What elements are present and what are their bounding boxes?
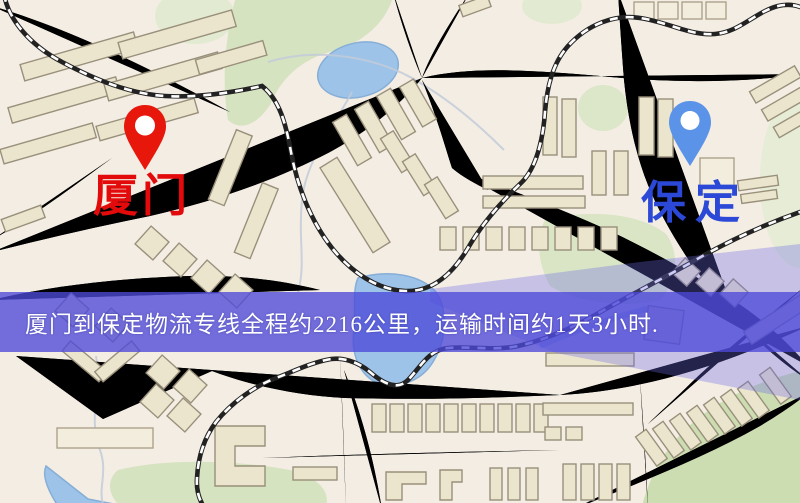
- map-background: [0, 0, 800, 503]
- banner-text: 厦门到保定物流专线全程约2216公里，运输时间约1天3小时.: [0, 305, 659, 339]
- map-screenshot: 厦门 保定 厦门到保定物流专线全程约2216公里，运输时间约1天3小时.: [0, 0, 800, 503]
- origin-pin-shape: [124, 105, 166, 170]
- destination-label: 保定: [641, 181, 749, 226]
- origin-pin-hole: [135, 116, 155, 136]
- origin-map-pin-icon: [122, 104, 168, 172]
- destination-pin-shape: [669, 101, 711, 166]
- destination-pin-hole: [681, 111, 700, 130]
- origin-label: 厦门: [93, 174, 191, 219]
- info-banner: 厦门到保定物流专线全程约2216公里，运输时间约1天3小时.: [0, 292, 800, 352]
- destination-map-pin-icon: [667, 100, 713, 168]
